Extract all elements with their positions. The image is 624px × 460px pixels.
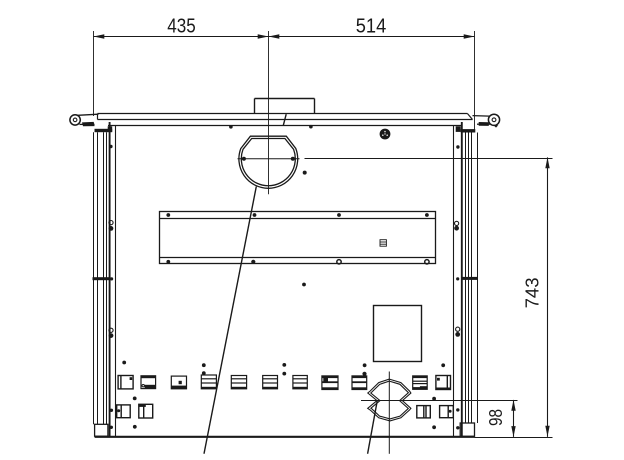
svg-text:98: 98 [486, 409, 506, 426]
svg-text:514: 514 [356, 15, 387, 37]
svg-text:743: 743 [523, 277, 543, 308]
svg-text:435: 435 [167, 15, 196, 37]
